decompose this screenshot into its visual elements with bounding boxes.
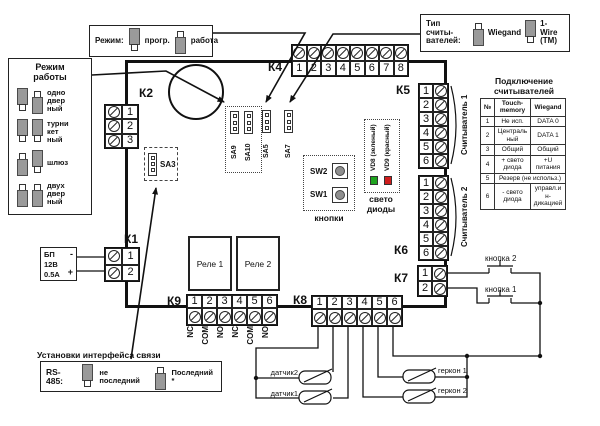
- relay-2: Реле 2: [236, 236, 280, 291]
- screw-icon: [435, 99, 447, 111]
- screw-icon: [380, 47, 392, 59]
- screw-icon: [337, 47, 349, 59]
- k6-label: К6: [394, 244, 408, 256]
- connector-k5: 123456: [418, 83, 449, 169]
- mode-progr-label: прогр.: [145, 37, 170, 45]
- reader-table-row: 2ЦентральныйDATA 1: [481, 127, 566, 145]
- terminal-number: 4: [232, 295, 247, 308]
- screw-icon: [293, 47, 305, 59]
- connector-k1: 12: [104, 247, 140, 282]
- controller-wiring-diagram: БП12В0.5А - + 123 12 12345678 123456 123…: [0, 0, 600, 426]
- rs485-notlast-jumper-icon: [82, 364, 93, 390]
- work-mode-jumper-icon: [17, 181, 28, 207]
- screw-icon: [322, 47, 334, 59]
- reader-table-header: Wiegand: [531, 99, 566, 117]
- work-mode-option-label: одно двер ный: [47, 89, 65, 113]
- work-mode-row: двух двер ный: [17, 181, 87, 207]
- terminal-number: 1: [292, 61, 307, 76]
- k9-pin-label: NO: [261, 326, 276, 338]
- screw-terminal: [433, 154, 448, 168]
- screw-icon: [366, 47, 378, 59]
- screw-icon: [219, 311, 231, 323]
- reader-table-cell: DATA 1: [531, 127, 566, 145]
- relay-1: Реле 1: [188, 236, 232, 291]
- screw-terminal: [312, 309, 327, 326]
- sw2-button: [332, 163, 348, 179]
- connector-k7: 12: [417, 265, 448, 297]
- screw-terminal: [105, 119, 122, 133]
- reader-table-cell: 4: [481, 155, 495, 173]
- screw-icon: [249, 311, 261, 323]
- screw-terminal: [217, 308, 232, 325]
- terminal-number: 2: [327, 296, 342, 309]
- k4-label: К4: [268, 61, 282, 73]
- reader-table-cell: 6: [481, 184, 495, 209]
- buttons-group: SW2 SW1: [303, 155, 355, 211]
- led-red: [384, 176, 392, 185]
- screw-icon: [435, 155, 447, 167]
- button2-label: кнопка 2: [485, 255, 517, 263]
- reed2-switch-symbol: [403, 388, 436, 403]
- terminal-number: 5: [372, 296, 387, 309]
- k7-label: К7: [394, 272, 408, 284]
- sa3-label: SA3: [160, 160, 176, 169]
- terminal-number: 2: [419, 190, 433, 204]
- rs485-last-jumper-icon: [155, 364, 166, 390]
- terminal-number: 2: [122, 265, 139, 282]
- mode-jumper-box: Режим: прогр. работа: [89, 25, 213, 57]
- screw-terminal: [105, 248, 122, 265]
- terminal-number: 2: [202, 295, 217, 308]
- sa5-jumper-icon: [262, 110, 271, 133]
- reed2-label: геркон 2: [438, 387, 467, 395]
- sa3-group: SA3: [144, 147, 178, 181]
- work-mode-rows: одно двер ныйтурни кет ныйшлюздвух двер …: [17, 88, 87, 207]
- work-mode-jumper-icon: [32, 119, 43, 145]
- screw-terminal: [105, 265, 122, 282]
- buttons-caption: кнопки: [303, 213, 355, 223]
- reader-table-row: 3ОбщийОбщий: [481, 145, 566, 155]
- screw-icon: [314, 312, 326, 324]
- reed1-label: геркон 1: [438, 367, 467, 375]
- terminal-number: 2: [122, 119, 138, 133]
- screw-icon: [329, 312, 341, 324]
- terminal-number: 1: [312, 296, 327, 309]
- relay-2-label: Реле 2: [245, 259, 272, 269]
- reader-table-row: 6- свето диодауправл.ин-дикацией: [481, 184, 566, 209]
- reader-table-cell: Общий: [495, 145, 531, 155]
- screw-icon: [108, 120, 120, 132]
- screw-icon: [435, 85, 447, 97]
- screw-terminal: [433, 204, 448, 218]
- screw-terminal: [350, 45, 365, 61]
- psu-minus: -: [70, 249, 73, 259]
- reader-table-cell: Резерв (не использ.): [495, 173, 566, 183]
- screw-terminal: [292, 45, 307, 61]
- reader-table-title: Подключение считывателей: [476, 76, 572, 96]
- sa10-jumper-icon: [244, 111, 253, 134]
- reader-table-cell: Не исп.: [495, 116, 531, 126]
- screw-icon: [389, 312, 401, 324]
- reader-table-cell: - свето диода: [495, 184, 531, 209]
- screw-icon: [435, 219, 447, 231]
- psu-box: БП12В0.5А - +: [40, 247, 77, 281]
- rs485-label: RS-485:: [46, 368, 76, 386]
- terminal-number: 2: [419, 98, 433, 112]
- screw-terminal: [433, 246, 448, 260]
- sensor1-switch-symbol: [299, 389, 332, 404]
- reader-table-header: Touch- memory: [495, 99, 531, 117]
- sa9-jumper-icon: [230, 111, 239, 134]
- k9-pin-labels: NCCOMNONCCOMNO: [186, 326, 276, 356]
- rs485-box: RS-485: не последний Последний *: [40, 361, 222, 392]
- terminal-number: 2: [307, 61, 322, 76]
- screw-terminal: [307, 45, 322, 61]
- work-mode-box: Режим работы одно двер ныйтурни кет ныйш…: [8, 58, 92, 215]
- mode-work-label: работа: [191, 37, 218, 45]
- screw-icon: [374, 312, 386, 324]
- terminal-number: 5: [419, 140, 433, 154]
- terminal-number: 5: [247, 295, 262, 308]
- work-mode-option-label: турни кет ный: [47, 120, 69, 144]
- reader-type-box: Тип считы- вателей: Wiegand 1-Wire (ТМ): [420, 14, 570, 52]
- rs485-title: Установки интерфейса связи: [37, 350, 161, 360]
- screw-icon: [435, 191, 447, 203]
- reader-table-header: №: [481, 99, 495, 117]
- screw-icon: [435, 205, 447, 217]
- screw-icon: [108, 267, 120, 279]
- screw-icon: [234, 311, 246, 323]
- screw-terminal: [105, 134, 122, 148]
- screw-icon: [435, 177, 447, 189]
- screw-icon: [395, 47, 407, 59]
- screw-icon: [204, 311, 216, 323]
- screw-icon: [434, 268, 446, 280]
- work-mode-option-label: двух двер ный: [47, 182, 65, 206]
- vd9-label: VD9 (красный): [382, 122, 393, 174]
- screw-terminal: [232, 308, 247, 325]
- terminal-number: 4: [419, 126, 433, 140]
- screw-terminal: [105, 105, 122, 119]
- screw-terminal: [321, 45, 336, 61]
- reader-table-row: 1Не исп.DATA 0: [481, 116, 566, 126]
- reader-table-cell: 2: [481, 127, 495, 145]
- sw2-button-cap: [335, 166, 345, 176]
- sw1-label: SW1: [310, 190, 327, 199]
- work-mode-jumper-icon: [32, 181, 43, 207]
- terminal-number: 7: [379, 61, 394, 76]
- k1-label: К1: [124, 233, 138, 245]
- reader-table-cell: Общий: [531, 145, 566, 155]
- screw-icon: [435, 141, 447, 153]
- sa7-jumper-icon: [284, 110, 293, 133]
- screw-terminal: [394, 45, 409, 61]
- sw2-label: SW2: [310, 167, 327, 176]
- terminal-number: 1: [419, 84, 433, 98]
- screw-terminal: [379, 45, 394, 61]
- screw-terminal: [372, 309, 387, 326]
- psu-label: БП12В0.5А: [44, 250, 60, 279]
- screw-icon: [435, 113, 447, 125]
- screw-terminal: [433, 112, 448, 126]
- sensor1-label: датчик1: [266, 390, 298, 398]
- screw-icon: [264, 311, 276, 323]
- button1-label: кнопка 1: [485, 286, 517, 294]
- sw1-button-cap: [335, 190, 345, 200]
- k8-label: К8: [293, 294, 307, 306]
- screw-terminal: [433, 218, 448, 232]
- connector-k6: 123456: [418, 175, 449, 261]
- reed1-switch-symbol: [403, 368, 436, 383]
- screw-terminal: [433, 126, 448, 140]
- k9-pin-label: NO: [216, 326, 231, 338]
- screw-terminal: [336, 45, 351, 61]
- terminal-number: 6: [387, 296, 402, 309]
- terminal-number: 4: [419, 218, 433, 232]
- screw-terminal: [342, 309, 357, 326]
- led-green: [370, 176, 378, 185]
- screw-terminal: [387, 309, 402, 326]
- work-mode-jumper-icon: [17, 88, 28, 114]
- terminal-number: 1: [418, 266, 432, 281]
- work-mode-jumper-icon: [17, 150, 28, 176]
- work-mode-row: шлюз: [17, 150, 87, 176]
- terminal-number: 3: [122, 134, 138, 148]
- k9-pin-label: NC: [186, 326, 201, 338]
- reader-table-cell: управл.ин-дикацией: [531, 184, 566, 209]
- screw-terminal: [433, 232, 448, 246]
- connector-k8: 123456: [311, 295, 403, 327]
- terminal-number: 6: [365, 61, 380, 76]
- sensor2-label: датчик2: [266, 369, 298, 377]
- work-mode-jumper-icon: [32, 88, 43, 114]
- sensor2-switch-symbol: [299, 369, 332, 384]
- terminal-number: 1: [122, 105, 138, 119]
- screw-terminal: [357, 309, 372, 326]
- one-wire-jumper-icon: [525, 20, 536, 46]
- sa5-label: SA5: [261, 135, 272, 167]
- screw-icon: [351, 47, 363, 59]
- reader-table-cell: DATA 0: [531, 116, 566, 126]
- terminal-number: 3: [217, 295, 232, 308]
- screw-icon: [108, 135, 120, 147]
- terminal-number: 1: [187, 295, 202, 308]
- k5-label: К5: [396, 84, 410, 96]
- reader-table-cell: 5: [481, 173, 495, 183]
- mode-progr-jumper-icon: [129, 28, 140, 54]
- reader-connection-table: №Touch- memoryWiegand1Не исп.DATA 02Цент…: [480, 98, 566, 210]
- terminal-number: 2: [418, 281, 432, 296]
- k2-label: К2: [139, 87, 153, 99]
- work-mode-title: Режим работы: [9, 62, 91, 83]
- reader1-label: Считыватель 1: [458, 84, 471, 166]
- reader-table-cell: 1: [481, 116, 495, 126]
- screw-icon: [189, 311, 201, 323]
- terminal-number: 3: [419, 204, 433, 218]
- work-mode-option-label: шлюз: [47, 159, 68, 167]
- screw-terminal: [262, 308, 277, 325]
- screw-terminal: [247, 308, 262, 325]
- reader-type-label: Тип считы- вателей:: [426, 20, 469, 45]
- psu-plus: +: [68, 267, 73, 277]
- terminal-number: 4: [336, 61, 351, 76]
- screw-terminal: [432, 281, 447, 296]
- k9-pin-label: NC: [231, 326, 246, 338]
- reader-table-row: 4+ свето диода+U питания: [481, 155, 566, 173]
- leds-caption: свето диоды: [358, 194, 404, 214]
- reader-table-row: 5Резерв (не использ.): [481, 173, 566, 183]
- sa10-label: SA10: [243, 136, 254, 168]
- one-wire-label: 1-Wire (ТМ): [540, 20, 564, 45]
- relay-1-label: Реле 1: [197, 259, 224, 269]
- terminal-number: 3: [419, 112, 433, 126]
- reader-table-cell: +U питания: [531, 155, 566, 173]
- vd8-label: VD8 (зеленый): [368, 122, 379, 174]
- k9-pin-label: COM: [201, 326, 216, 345]
- mode-work-jumper-icon: [175, 28, 186, 54]
- reader-table-cell: 3: [481, 145, 495, 155]
- connector-k4: 12345678: [291, 44, 409, 77]
- sw1-button: [332, 187, 348, 203]
- wiegand-label: Wiegand: [488, 29, 521, 37]
- sa3-jumper-icon: [148, 153, 157, 176]
- terminal-number: 6: [262, 295, 277, 308]
- screw-terminal: [432, 266, 447, 281]
- leds-group: VD8 (зеленый) VD9 (красный): [364, 119, 400, 193]
- k9-label: К9: [167, 295, 181, 307]
- work-mode-jumper-icon: [32, 150, 43, 176]
- k9-pin-label: COM: [246, 326, 261, 345]
- screw-icon: [435, 127, 447, 139]
- screw-terminal: [187, 308, 202, 325]
- reader-table-cell: Центральный: [495, 127, 531, 145]
- screw-icon: [108, 250, 120, 262]
- work-mode-row: одно двер ный: [17, 88, 87, 114]
- reader-braces: [451, 86, 456, 256]
- terminal-number: 1: [419, 176, 433, 190]
- screw-icon: [359, 312, 371, 324]
- terminal-number: 4: [357, 296, 372, 309]
- screw-terminal: [327, 309, 342, 326]
- work-mode-jumper-icon: [17, 119, 28, 145]
- screw-icon: [344, 312, 356, 324]
- screw-icon: [108, 106, 120, 118]
- terminal-number: 3: [321, 61, 336, 76]
- terminal-number: 1: [122, 248, 139, 265]
- reader-table-cell: + свето диода: [495, 155, 531, 173]
- screw-icon: [435, 247, 447, 259]
- rs485-notlast-label: не последний: [99, 369, 148, 385]
- screw-icon: [435, 233, 447, 245]
- connector-k9: 123456: [186, 294, 278, 326]
- screw-terminal: [433, 84, 448, 98]
- sa9-label: SA9: [229, 136, 240, 168]
- terminal-number: 5: [350, 61, 365, 76]
- work-mode-row: турни кет ный: [17, 119, 87, 145]
- screw-terminal: [433, 98, 448, 112]
- screw-terminal: [365, 45, 380, 61]
- connector-k2: 123: [104, 104, 139, 149]
- rs485-last-label: Последний *: [172, 369, 216, 385]
- mode-label: Режим:: [95, 37, 124, 45]
- screw-terminal: [202, 308, 217, 325]
- screw-icon: [434, 283, 446, 295]
- terminal-number: 8: [394, 61, 409, 76]
- screw-terminal: [433, 140, 448, 154]
- screw-terminal: [433, 190, 448, 204]
- reader2-label: Считыватель 2: [458, 176, 471, 258]
- terminal-number: 3: [342, 296, 357, 309]
- terminal-number: 6: [419, 246, 433, 260]
- screw-terminal: [433, 176, 448, 190]
- terminal-number: 6: [419, 154, 433, 168]
- terminal-number: 5: [419, 232, 433, 246]
- wiegand-jumper-icon: [473, 20, 484, 46]
- screw-icon: [308, 47, 320, 59]
- sa7-label: SA7: [283, 135, 294, 167]
